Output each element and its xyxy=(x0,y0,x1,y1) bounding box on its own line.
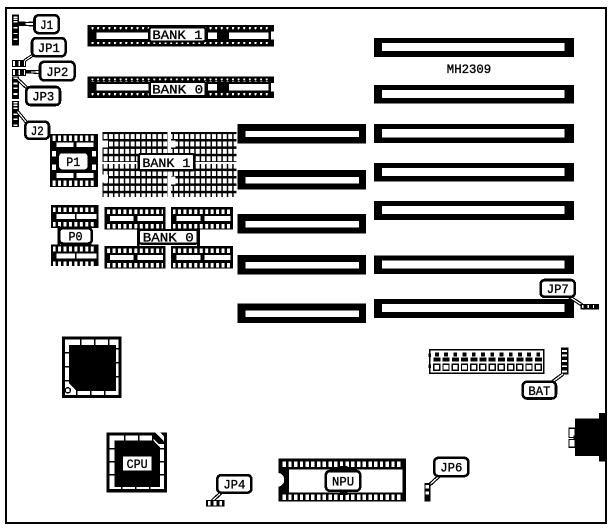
svg-text:JP4: JP4 xyxy=(223,478,245,493)
svg-text:JP2: JP2 xyxy=(46,65,68,80)
svg-text:BANK 1: BANK 1 xyxy=(152,28,202,43)
svg-text:P0: P0 xyxy=(69,230,83,245)
svg-text:BANK 0: BANK 0 xyxy=(152,83,203,98)
svg-text:JP6: JP6 xyxy=(440,461,462,476)
svg-text:J1: J1 xyxy=(40,18,53,33)
svg-text:CPU: CPU xyxy=(127,457,148,472)
svg-text:P1: P1 xyxy=(66,155,80,170)
svg-text:BANK 1: BANK 1 xyxy=(142,156,190,171)
svg-text:NPU: NPU xyxy=(332,475,354,490)
svg-text:JP1: JP1 xyxy=(38,41,60,56)
svg-text:J2: J2 xyxy=(31,124,44,139)
svg-text:BANK 0: BANK 0 xyxy=(143,230,194,245)
svg-text:JP3: JP3 xyxy=(32,90,54,105)
svg-text:BAT: BAT xyxy=(528,384,550,399)
svg-text:JP7: JP7 xyxy=(547,282,569,297)
svg-text:MH2309: MH2309 xyxy=(447,62,491,77)
